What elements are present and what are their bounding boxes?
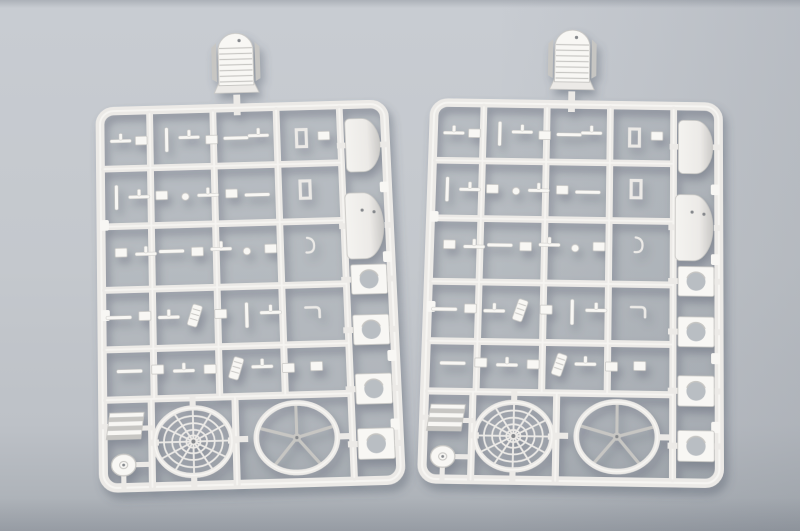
background-surface xyxy=(0,0,800,531)
right-vignette xyxy=(0,0,800,531)
photo-stage xyxy=(0,0,800,531)
surface-front-edge-shadow xyxy=(0,498,800,531)
